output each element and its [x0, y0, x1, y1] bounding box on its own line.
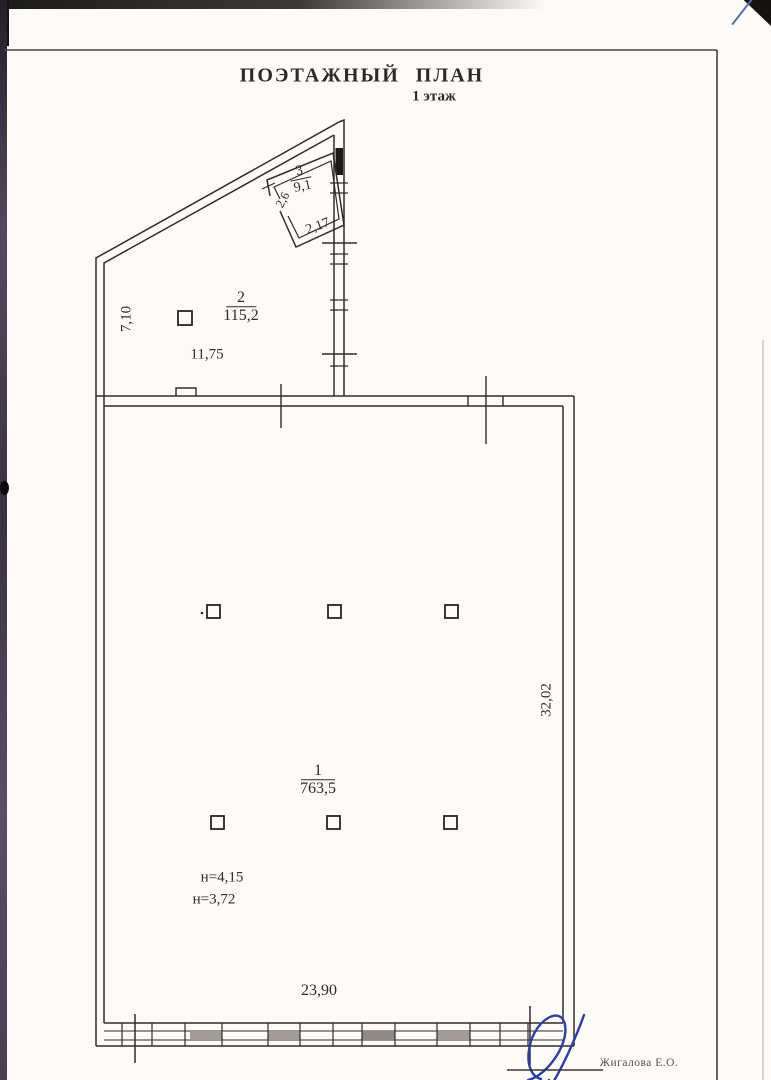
- column-markers: [178, 311, 458, 829]
- stray-dot: [201, 612, 204, 615]
- room1-dim-right: 32,02: [539, 683, 556, 717]
- room2-label: 2 115,2: [223, 289, 258, 325]
- page-title: ПОЭТАЖНЫЙ ПЛАН: [240, 65, 484, 88]
- building-walls: [96, 120, 574, 1046]
- column-marker: [444, 816, 457, 829]
- room1-dim-bottom: 23,90: [301, 982, 337, 1000]
- wall-solid-block: [336, 148, 344, 175]
- bottom-wall-windows: [122, 1006, 530, 1065]
- room2-dim-bottom: 11,75: [190, 347, 223, 364]
- document-frame: [4, 50, 717, 1080]
- column-marker: [445, 605, 458, 618]
- floor-plan-drawing: [0, 0, 771, 1080]
- column-marker: [211, 816, 224, 829]
- window-hatch: [268, 1031, 300, 1040]
- room1-area: 763,5: [300, 781, 336, 798]
- window-hatch: [437, 1031, 470, 1040]
- room1-height-line1: н=4,15: [201, 870, 244, 887]
- window-hatch: [362, 1031, 395, 1040]
- scanned-floor-plan-page: ПОЭТАЖНЫЙ ПЛАН 1 этаж 3 9,1 2,6 2,17 2 1…: [0, 0, 771, 1080]
- upper-wall-window-ticks: [322, 183, 357, 366]
- room2-number: 2: [226, 289, 256, 307]
- wall-bottom: [96, 1023, 574, 1046]
- wall-right: [563, 396, 574, 1046]
- room2-area: 115,2: [223, 308, 258, 325]
- room1-number: 1: [301, 762, 335, 780]
- examiner-name: Жигалова Е.О.: [600, 1057, 679, 1069]
- divider-wall-details: [176, 376, 503, 444]
- column-marker: [327, 816, 340, 829]
- column-marker: [178, 311, 192, 325]
- room1-height-line2: н=3,72: [193, 892, 236, 909]
- room2-dim-left: 7,10: [119, 306, 136, 332]
- window-hatch: [190, 1031, 222, 1040]
- column-marker: [207, 605, 220, 618]
- column-marker: [328, 605, 341, 618]
- room1-label: 1 763,5: [300, 762, 336, 798]
- wall-inner-left: [104, 135, 334, 1023]
- page-subtitle: 1 этаж: [412, 89, 456, 106]
- wall-niche: [176, 388, 196, 396]
